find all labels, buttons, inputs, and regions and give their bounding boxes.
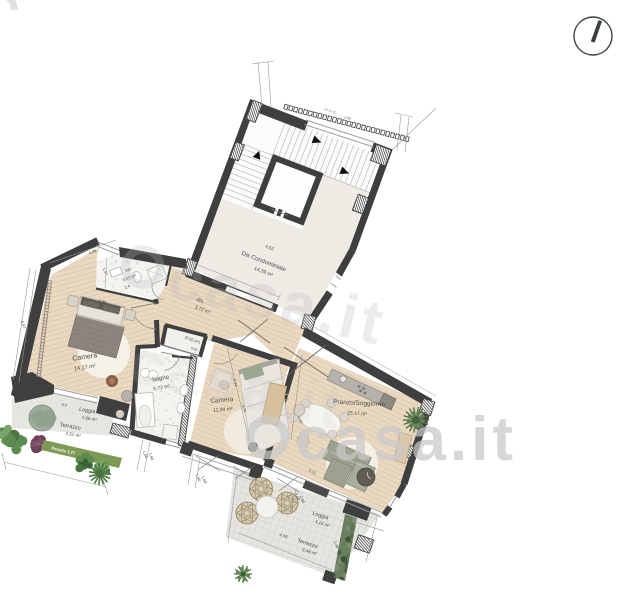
svg-text:8,9: 8,9	[61, 403, 67, 408]
